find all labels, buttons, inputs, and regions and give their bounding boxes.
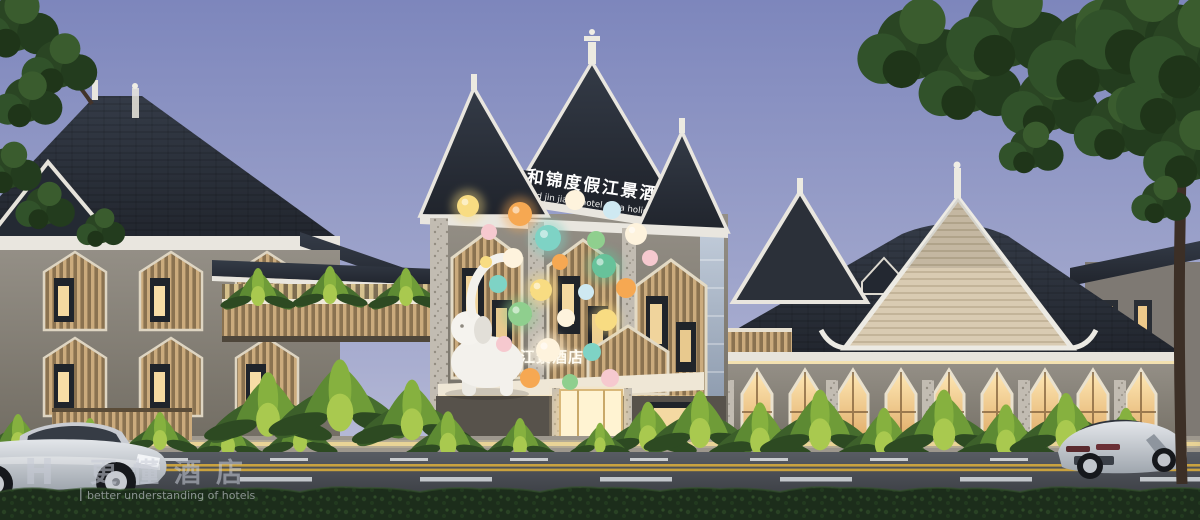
watermark-logo-cn: 更懂酒店 (90, 458, 258, 489)
watermark-logo-latin: H (24, 452, 54, 493)
hotel-rendering-image: 和锦度假江景酒店 And jin jiang hotel for a holid… (0, 0, 1200, 520)
scene-canvas: 和锦度假江景酒店 And jin jiang hotel for a holid… (0, 0, 1200, 520)
watermark-tagline: better understanding of hotels (87, 489, 256, 502)
walkway-bridge (212, 260, 462, 342)
